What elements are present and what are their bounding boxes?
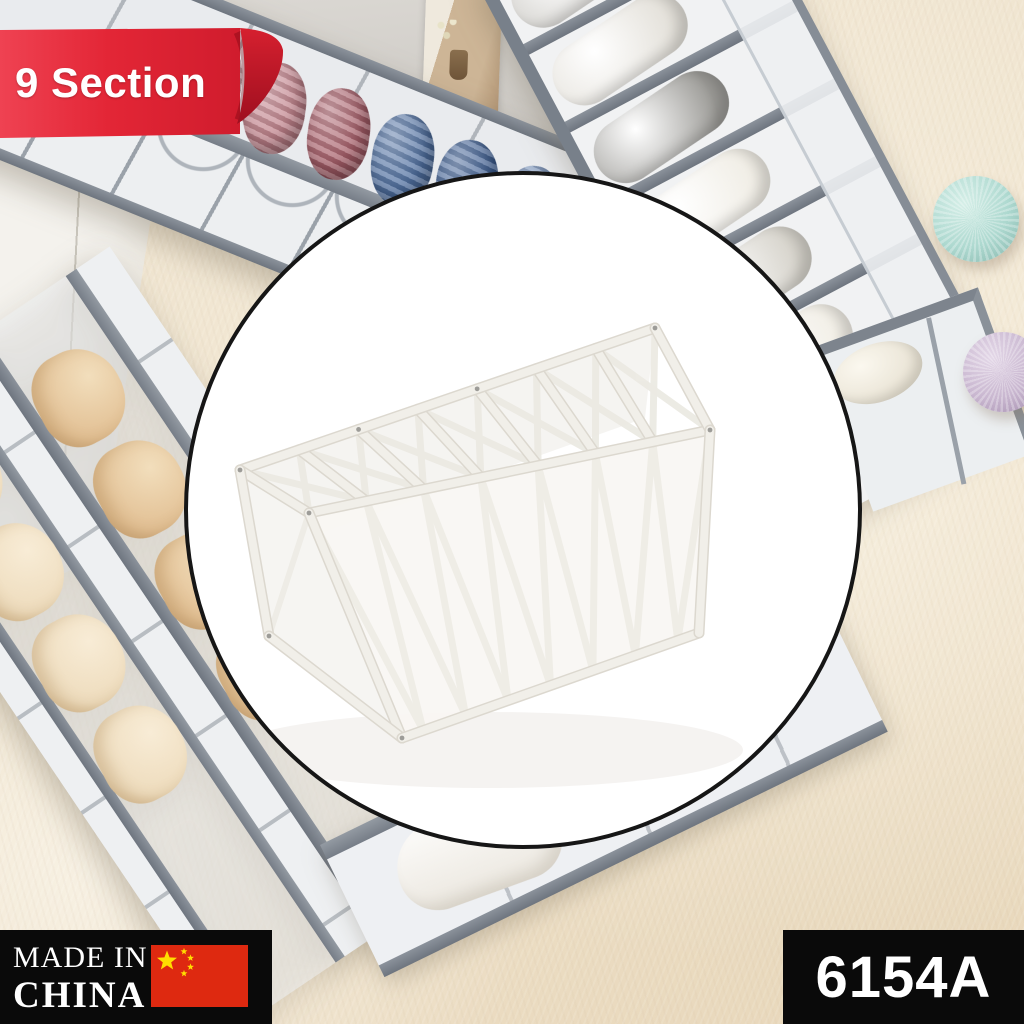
product-image-canvas: 9 Section MADE IN CHINA 6154A xyxy=(0,0,1024,1024)
china-flag-icon xyxy=(151,945,248,1007)
section-count-ribbon: 9 Section xyxy=(0,28,300,148)
mesh-organizer-product xyxy=(188,175,858,845)
product-code-label: 6154A xyxy=(816,944,992,1011)
pompom-teal xyxy=(933,176,1019,262)
china-label: CHINA xyxy=(13,976,148,1016)
product-code-badge: 6154A xyxy=(783,930,1024,1024)
made-in-label: MADE IN xyxy=(13,940,148,976)
product-spotlight-circle xyxy=(184,171,862,849)
made-in-china-text: MADE IN CHINA xyxy=(13,940,148,1016)
section-count-label: 9 Section xyxy=(15,28,230,138)
made-in-china-badge: MADE IN CHINA xyxy=(0,930,272,1024)
